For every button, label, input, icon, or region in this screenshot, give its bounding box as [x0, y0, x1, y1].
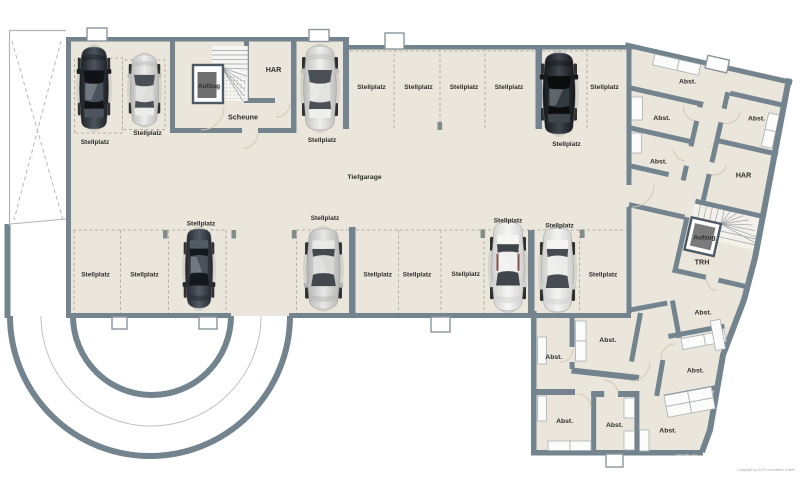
- svg-text:Stellplatz: Stellplatz: [81, 139, 110, 146]
- svg-text:IMMOBILIEN: IMMOBILIEN: [676, 453, 698, 457]
- svg-text:Stellplatz: Stellplatz: [589, 271, 618, 278]
- svg-text:TRH: TRH: [695, 258, 710, 267]
- svg-text:Stellplatz: Stellplatz: [450, 84, 479, 91]
- svg-text:Aufzug: Aufzug: [198, 83, 220, 90]
- svg-text:Stellplatz: Stellplatz: [311, 215, 340, 222]
- svg-text:Stellplatz: Stellplatz: [494, 218, 523, 225]
- svg-text:Stellplatz: Stellplatz: [357, 84, 386, 91]
- svg-text:Stellplatz: Stellplatz: [403, 271, 432, 278]
- svg-text:Stellplatz: Stellplatz: [452, 271, 481, 278]
- svg-text:Stellplatz: Stellplatz: [545, 223, 574, 230]
- svg-text:Scheune: Scheune: [228, 113, 258, 122]
- svg-text:Abst.: Abst.: [687, 368, 704, 375]
- svg-text:Stellplatz: Stellplatz: [130, 272, 159, 279]
- svg-text:Stellplatz: Stellplatz: [364, 271, 393, 278]
- svg-text:Stellplatz: Stellplatz: [187, 221, 216, 228]
- svg-text:Stellplatz: Stellplatz: [81, 272, 110, 279]
- svg-text:Abst.: Abst.: [556, 418, 573, 425]
- svg-text:Abst.: Abst.: [599, 337, 616, 344]
- svg-text:Abst.: Abst.: [545, 354, 562, 361]
- svg-text:Stellplatz: Stellplatz: [133, 130, 162, 137]
- svg-text:Abst.: Abst.: [679, 79, 696, 86]
- svg-text:Stellplatz: Stellplatz: [404, 84, 433, 91]
- svg-text:Tiefgarage: Tiefgarage: [347, 174, 381, 181]
- svg-text:Stellplatz: Stellplatz: [552, 141, 581, 148]
- svg-text:Abst.: Abst.: [653, 115, 670, 122]
- svg-text:HAR: HAR: [266, 65, 282, 74]
- svg-text:Abst.: Abst.: [748, 116, 765, 123]
- svg-text:Abst.: Abst.: [695, 310, 712, 317]
- svg-text:Abst.: Abst.: [606, 422, 623, 429]
- svg-text:Copyright by ALFA Immobilien G: Copyright by ALFA Immobilien GmbH: [737, 468, 795, 472]
- svg-text:Abst.: Abst.: [659, 428, 676, 435]
- svg-text:Stellplatz: Stellplatz: [495, 84, 524, 91]
- svg-text:Abst.: Abst.: [650, 159, 667, 166]
- svg-text:HAR: HAR: [736, 171, 752, 180]
- svg-text:Stellplatz: Stellplatz: [308, 137, 337, 144]
- svg-text:Stellplatz: Stellplatz: [590, 84, 619, 91]
- svg-text:Aufzug: Aufzug: [693, 235, 715, 242]
